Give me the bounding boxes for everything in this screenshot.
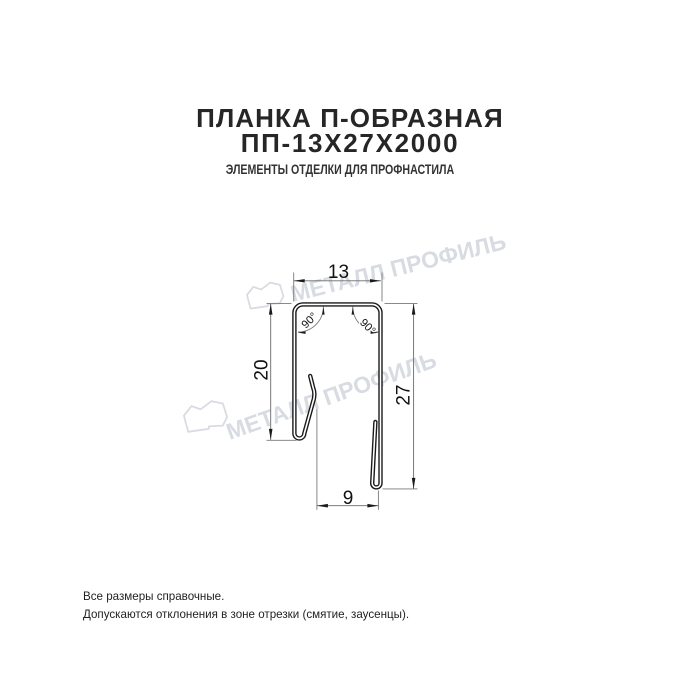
svg-text:МЕТАЛЛ ПРОФИЛЬ: МЕТАЛЛ ПРОФИЛЬ bbox=[288, 228, 509, 307]
svg-text:13: 13 bbox=[328, 262, 349, 283]
svg-text:20: 20 bbox=[251, 359, 272, 380]
svg-text:9: 9 bbox=[343, 488, 354, 509]
svg-text:90°: 90° bbox=[300, 311, 320, 331]
svg-text:90°: 90° bbox=[357, 317, 377, 337]
svg-text:27: 27 bbox=[394, 385, 415, 406]
